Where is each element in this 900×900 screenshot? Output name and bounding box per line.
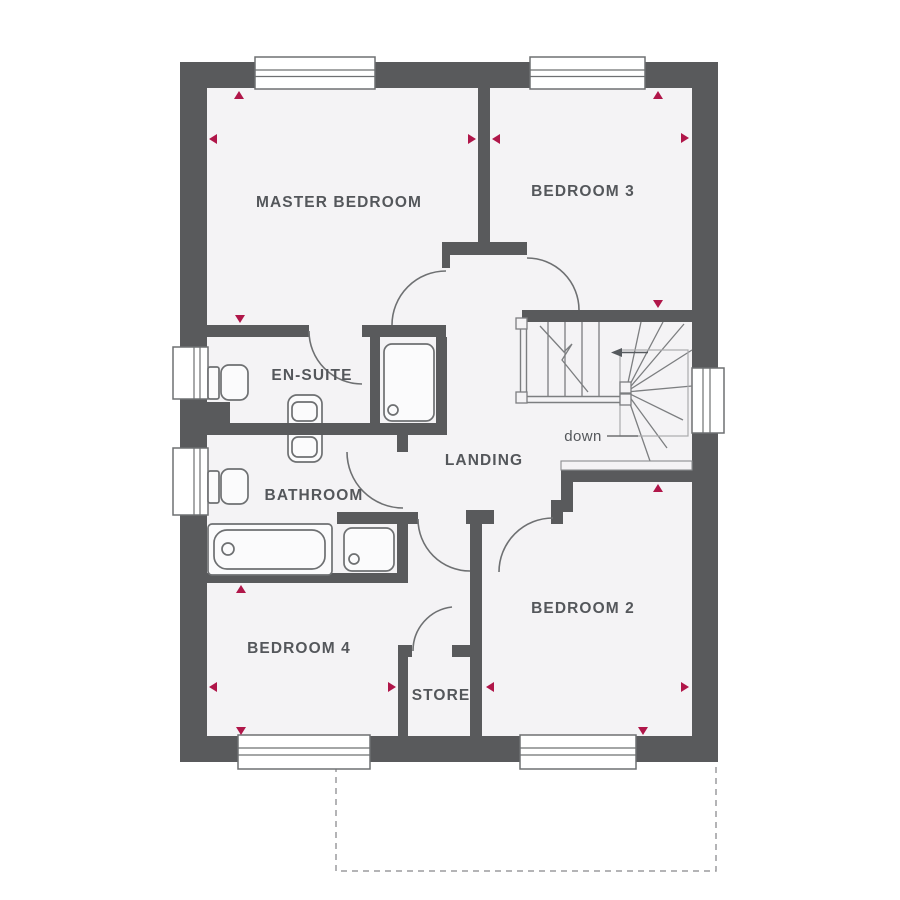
shower-bathroom (344, 528, 394, 571)
wall-left-pier (180, 402, 230, 435)
stair-bottom-edge (561, 461, 692, 470)
window-bedroom2 (520, 735, 636, 769)
window-stairs (692, 368, 724, 433)
window-bedroom3 (530, 57, 645, 89)
shower-ensuite (384, 344, 434, 421)
wall-store-left (398, 650, 408, 737)
window-master (255, 57, 375, 89)
window-ensuite (173, 347, 208, 399)
label-landing: LANDING (445, 452, 523, 469)
wall-centre-bar (442, 242, 527, 255)
label-bedroom-3: BEDROOM 3 (531, 183, 635, 200)
footprint-dashed-outline (336, 766, 716, 871)
basin-double (286, 395, 324, 462)
wall-ensuite-top-left (207, 325, 309, 337)
floor-plan-page: MASTER BEDROOM BEDROOM 3 EN-SUITE BATHRO… (0, 0, 900, 900)
wall-master-bed3 (478, 88, 490, 245)
bath (208, 524, 332, 575)
wall-ensuite-top-right (362, 325, 446, 337)
label-bedroom-4: BEDROOM 4 (247, 640, 351, 657)
label-en-suite: EN-SUITE (271, 367, 352, 384)
label-store: STORE (412, 687, 471, 704)
toilet-bathroom (208, 469, 248, 504)
wall-stairs-bottom (561, 470, 692, 482)
wall-tcap (466, 510, 494, 524)
wall-ensuite-bathroom (207, 423, 447, 435)
label-stairs-down: down (564, 428, 601, 445)
floor-plan-canvas: MASTER BEDROOM BEDROOM 3 EN-SUITE BATHRO… (0, 0, 900, 900)
wall-central (470, 524, 482, 737)
wall-stairs-top (522, 310, 692, 322)
window-bathroom (173, 448, 208, 515)
toilet-ensuite (208, 365, 248, 400)
label-master-bedroom: MASTER BEDROOM (256, 194, 422, 211)
window-bedroom4 (238, 735, 370, 769)
label-bathroom: BATHROOM (265, 487, 364, 504)
label-bedroom-2: BEDROOM 2 (531, 600, 635, 617)
